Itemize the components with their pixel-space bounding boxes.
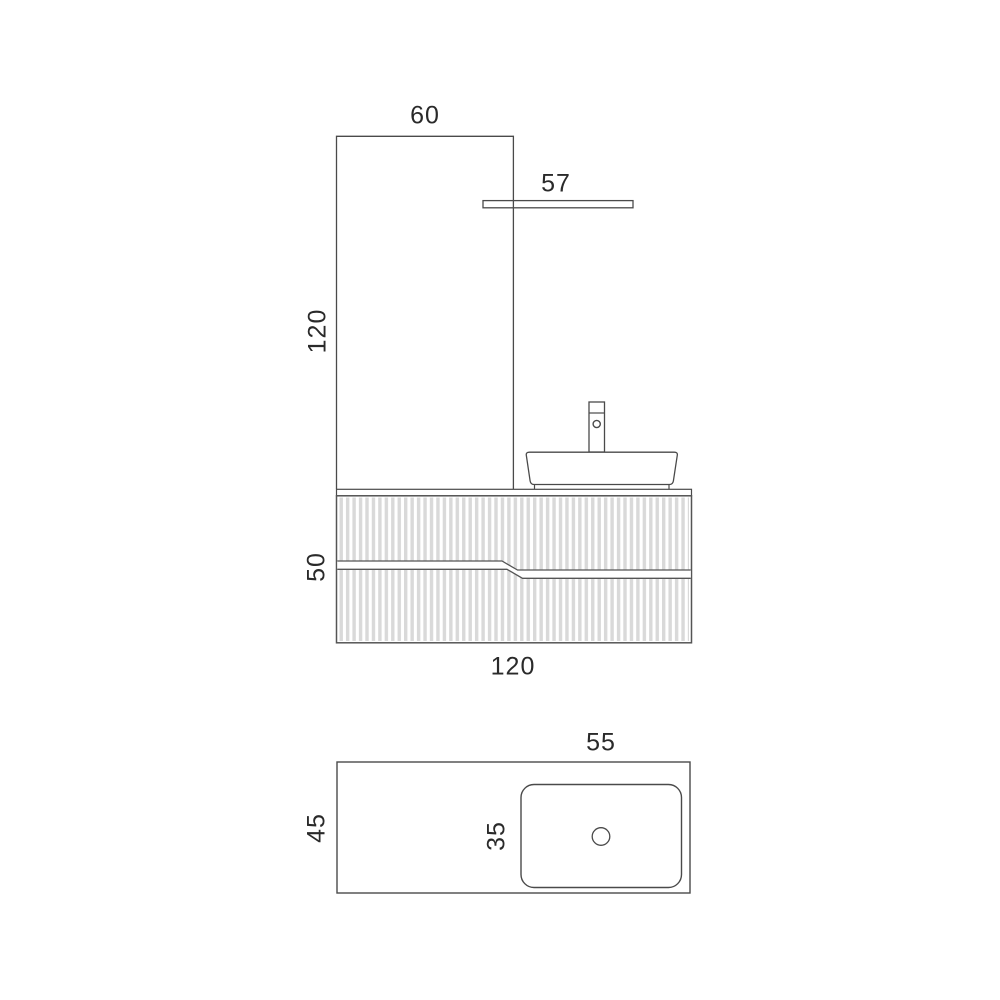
dim-shelf-width: 57	[541, 172, 571, 197]
faucet	[589, 402, 605, 452]
basin-front	[526, 452, 677, 489]
shelf	[483, 201, 633, 208]
dim-plan-depth: 45	[305, 813, 330, 843]
dim-cabinet-height: 50	[305, 552, 330, 582]
dim-panel-height: 120	[306, 309, 331, 354]
plan-view	[337, 762, 690, 893]
dim-basin-depth: 35	[485, 821, 510, 851]
technical-drawing: 60 57 120 50 120 45 55 35 const data = J…	[0, 0, 1000, 1000]
dim-panel-width: 60	[410, 104, 440, 129]
wall-panel	[337, 136, 514, 489]
dim-cabinet-width: 120	[491, 655, 536, 680]
dim-basin-width: 55	[586, 731, 616, 756]
plan-basin-outline	[521, 785, 682, 888]
vanity-cabinet	[337, 496, 692, 643]
countertop	[337, 489, 692, 496]
